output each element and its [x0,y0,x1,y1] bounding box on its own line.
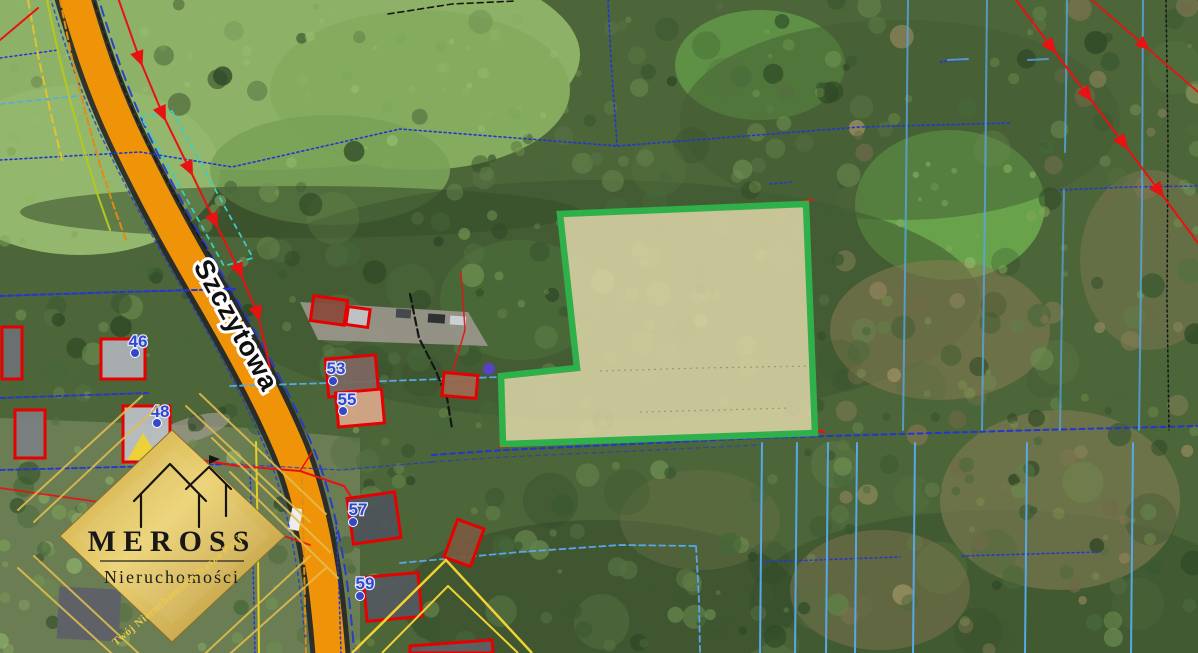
building-outline [346,307,370,328]
building-outline [310,296,347,325]
car [396,309,412,319]
house-number: 53 [327,359,346,378]
house-number: 55 [338,390,357,409]
house-number-marker [131,349,140,358]
house-number: 57 [349,500,368,519]
car [428,313,446,323]
house-number: 59 [356,574,375,593]
house-number: 46 [129,332,148,351]
house-number-marker [153,419,162,428]
building-outline [2,327,22,379]
building-outline [442,373,478,399]
house-number-marker [349,518,358,527]
house-number-marker [356,592,365,601]
survey-marker [483,363,495,375]
house-number-marker [329,377,338,386]
house-number-marker [339,407,348,416]
aerial-map-view: 46 48 53 55 57 59 Szczytowa [0,0,1198,653]
building-outline [15,410,45,458]
map-canvas: 46 48 53 55 57 59 Szczytowa [0,0,1198,653]
brand-subtitle: Nieruchomości [104,567,240,587]
